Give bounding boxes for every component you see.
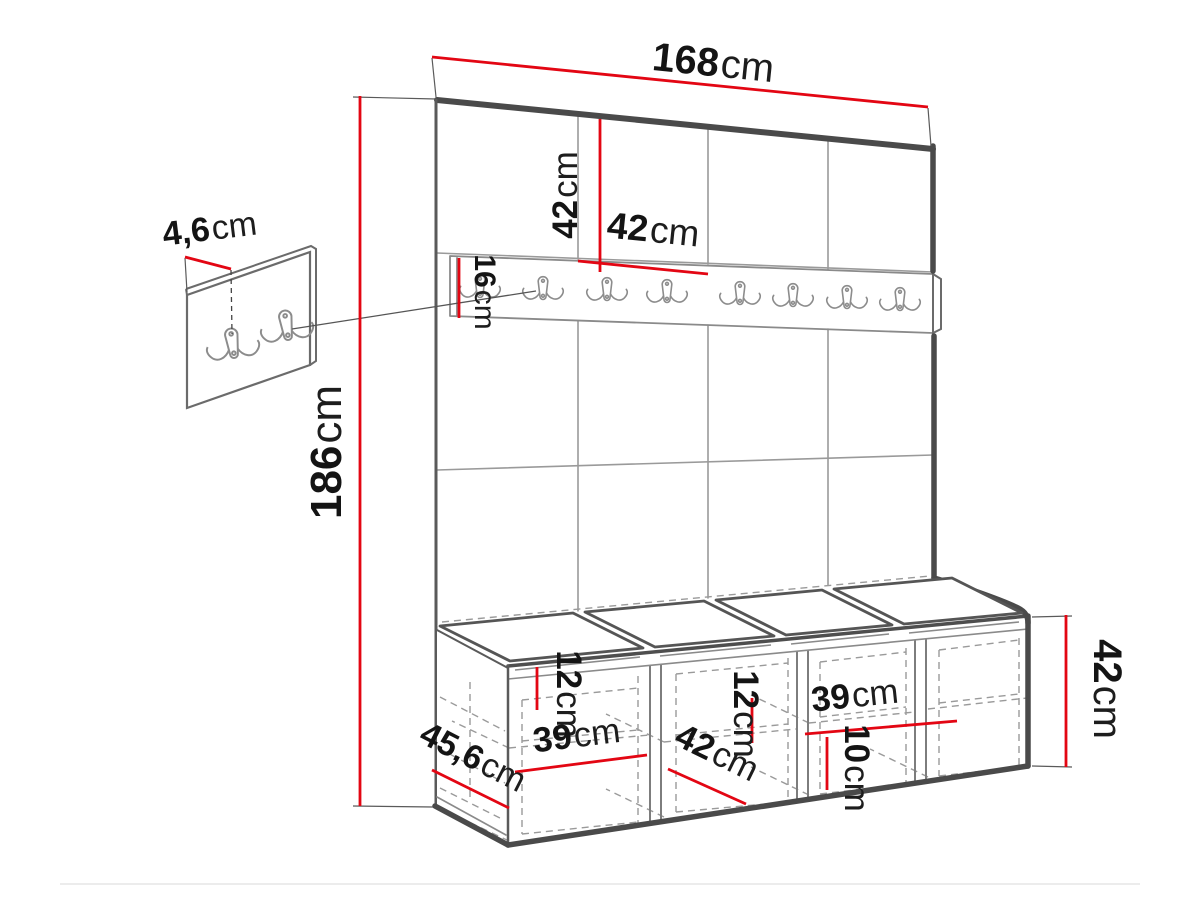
label-side-thickness-46: 4,6cm <box>160 204 259 253</box>
coat-hook-icon <box>523 277 564 300</box>
furniture-dimension-diagram: 168cm 186cm 42cm 42cm 16cm 4,6cm 12cm 39… <box>0 0 1200 899</box>
wall-top-edge <box>437 100 933 149</box>
label-bench-height-42: 42cm <box>1085 639 1129 739</box>
coat-hook-icon <box>587 278 628 301</box>
coat-hook-icon <box>773 284 814 307</box>
label-bench-right-10: 10cm <box>837 724 876 812</box>
coat-hook-icon <box>827 286 868 309</box>
label-height-186: 186cm <box>302 385 351 519</box>
coat-hook-icon <box>647 280 688 303</box>
label-width-168: 168cm <box>650 35 776 91</box>
label-panel-height-42: 42cm <box>546 151 585 239</box>
label-bench-mid-12: 12cm <box>726 670 765 758</box>
dim-line-side-thickness-46 <box>185 257 231 269</box>
coat-hook-icon <box>880 288 921 311</box>
label-rail-height-16: 16cm <box>468 254 501 329</box>
label-panel-width-42: 42cm <box>605 204 701 254</box>
wall-panel-seams-horizontal <box>437 253 933 470</box>
diagram-canvas: 168cm 186cm 42cm 42cm 16cm 4,6cm 12cm 39… <box>0 0 1200 899</box>
coat-hook-icon <box>720 282 761 305</box>
wall-right-edge <box>933 146 934 579</box>
wall-panel-seams-vertical <box>578 114 828 611</box>
hook-rail-right-end <box>933 274 941 333</box>
